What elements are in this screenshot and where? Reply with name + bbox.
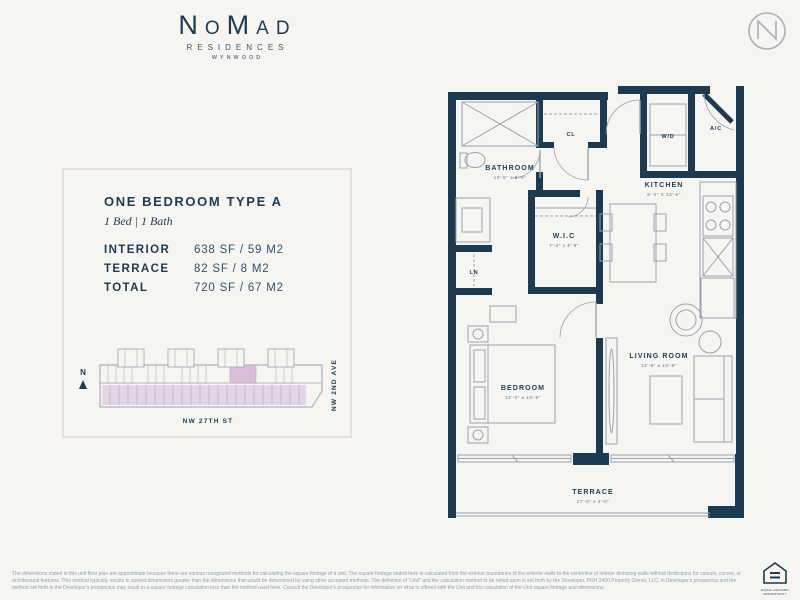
room-label-bedroom: BEDROOM [501,385,545,392]
stat-value: 720 SF / 67 M2 [194,282,284,294]
north-arrow-icon [79,380,87,389]
room-dims-terrace: 27'-0" x 4'-0" [577,499,610,504]
side-table [699,331,721,353]
lounge-chair [670,304,702,336]
sitemap-unit-highlight [230,365,256,383]
room-dims-wic: 7'-4" x 4'-9" [549,243,579,248]
unit-info-card: ONE BEDROOM TYPE A 1 Bed | 1 Bath INTERI… [62,168,352,438]
equal-housing-text-2: OPPORTUNITY [758,593,792,597]
pillow [474,350,485,382]
nightstand [468,326,488,342]
pillow [474,387,485,419]
coffee-table [650,376,682,424]
building-key-plan: N NW 27TH ST NW 2ND AVE [70,335,346,435]
stat-label: TERRACE [104,263,194,275]
room-label-ac: A/C [710,126,722,132]
dresser [490,306,516,322]
room-dims-bedroom: 13'-2" x 10'-6" [505,395,541,400]
nightstand [468,427,488,443]
room-label-kitchen: KITCHEN [645,182,684,189]
bathroom-vanity [456,198,490,242]
street-label-bottom: NW 27TH ST [183,418,234,425]
brand-logo: NoMad RESIDENCES WYNWOOD [140,12,335,61]
stat-label: TOTAL [104,282,194,294]
legal-disclaimer: The dimensions stated in this unit floor… [12,571,742,592]
unit-title: ONE BEDROOM TYPE A [104,194,283,209]
floor-plan: BATHROOM 10'-6" x 5'-6" CL W/D A/C KITCH… [448,86,744,530]
entry-door-leaf [704,94,732,122]
stat-value: 638 SF / 59 M2 [194,244,284,256]
room-dims-kitchen: 8'-0" X 13'-6" [647,192,680,197]
unit-subtitle: 1 Bed | 1 Bath [104,214,173,229]
north-label: N [80,368,86,377]
kitchen-counter [700,182,736,318]
unit-stats: INTERIOR 638 SF / 59 M2 TERRACE 82 SF / … [104,244,324,301]
room-dims-bathroom: 10'-6" x 5'-6" [494,175,527,180]
dining-table [610,204,656,282]
brand-residences-label: RESIDENCES [140,43,335,52]
room-dims-living: 13'-9" x 10'-8" [641,363,677,368]
brand-wynwood-label: WYNWOOD [140,55,335,61]
nomad-monogram-icon [744,8,790,54]
tv-console [606,338,617,444]
stat-row-interior: INTERIOR 638 SF / 59 M2 [104,244,324,256]
equal-housing-house-icon [762,562,788,584]
toilet [465,153,485,168]
stat-label: INTERIOR [104,244,194,256]
brand-wordmark: NoMad [140,12,335,39]
sitemap-unit-strip [102,385,306,405]
stat-row-total: TOTAL 720 SF / 67 M2 [104,282,324,294]
stat-value: 82 SF / 8 M2 [194,263,269,275]
equal-housing-logo: EQUAL HOUSING OPPORTUNITY [758,562,792,596]
refrigerator [701,278,734,318]
room-label-wd: W/D [661,134,674,140]
room-label-ln: LN [469,270,478,276]
stat-row-terrace: TERRACE 82 SF / 8 M2 [104,263,324,275]
room-label-wic: W.I.C [553,233,576,240]
street-label-right: NW 2ND AVE [331,359,338,411]
stove [703,196,733,236]
room-label-cl: CL [566,132,575,138]
room-label-bathroom: BATHROOM [485,165,535,172]
bed [470,345,555,423]
room-label-terrace: TERRACE [572,489,614,496]
room-label-living: LIVING ROOM [629,353,688,360]
tv [609,349,614,433]
